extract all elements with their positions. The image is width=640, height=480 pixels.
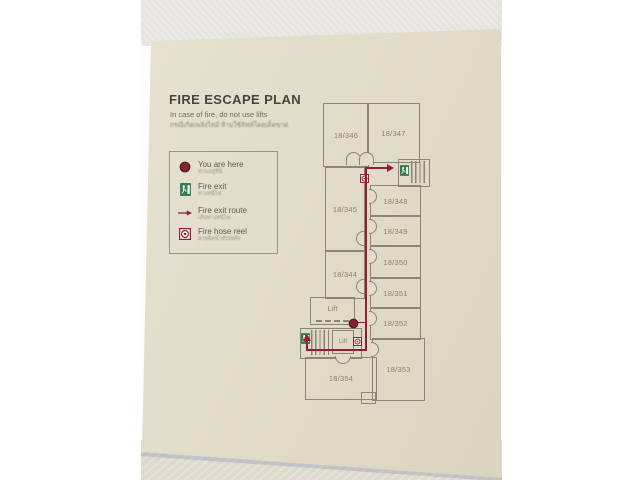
room-label: 18/345 <box>333 205 357 214</box>
route-line-bottom <box>306 349 367 351</box>
subtitle-thai: กรณีเกิดเพลิงไหม้ ห้ามใช้ลิฟท์โดยเด็ดขาด <box>170 120 288 130</box>
legend-label-thai: ท่านอยู่ที่นี่ <box>198 169 244 176</box>
route-arrowhead-right <box>387 164 394 172</box>
legend-item-fire-hose-reel: Fire hose reel สายฉีดน้ำดับเพลิง <box>178 227 247 243</box>
fire-exit-icon <box>178 182 192 196</box>
double-door-right-leaf <box>359 152 374 165</box>
room-label: 18/353 <box>386 365 410 374</box>
route-arrowhead-up <box>303 334 311 341</box>
room-label: 18/347 <box>381 129 405 138</box>
legend-label: Fire hose reel <box>198 227 247 236</box>
legend-label: Fire exit route <box>198 206 247 215</box>
stairs-bottom <box>311 330 331 355</box>
bottom-wall-notch <box>361 392 376 404</box>
floor-plan: 18/346 18/347 18/345 18/344 18/348 18/34… <box>298 95 438 413</box>
you-are-here-dot-icon <box>178 160 192 174</box>
room-18-351: 18/351 <box>370 277 421 309</box>
legend-label-thai: สายฉีดน้ำดับเพลิง <box>198 236 247 243</box>
fire-exit-icon-top <box>400 164 409 182</box>
legend-box: You are here ท่านอยู่ที่นี่ Fire exit ทา… <box>169 151 278 254</box>
room-label: 18/351 <box>383 289 407 298</box>
route-line-bottom-up <box>306 341 308 350</box>
route-line-vertical <box>365 167 367 351</box>
legend-label-thai: ทางหนีไฟ <box>198 191 226 198</box>
room-18-350: 18/350 <box>370 245 421 279</box>
room-label: 18/346 <box>334 131 358 140</box>
legend-label: Fire exit <box>198 182 226 191</box>
room-label: 18/349 <box>383 227 407 236</box>
route-line-top <box>366 167 388 169</box>
room-label: 18/344 <box>333 270 357 279</box>
fire-exit-route-arrow-icon <box>178 206 192 220</box>
room-18-352: 18/352 <box>370 307 421 340</box>
lift-doors-dashed-line <box>316 320 349 322</box>
room-18-353: 18/353 <box>372 338 425 401</box>
lift-label: Lift <box>327 304 337 313</box>
legend-item-you-are-here: You are here ท่านอยู่ที่นี่ <box>178 160 244 176</box>
room-18-347: 18/347 <box>367 103 420 163</box>
fire-hose-reel-icon <box>178 227 192 241</box>
room-18-348: 18/348 <box>370 185 421 217</box>
legend-label-thai: เส้นทางหนีไฟ <box>198 215 247 222</box>
room-18-349: 18/349 <box>370 215 421 247</box>
door-arc-345 <box>356 231 364 246</box>
you-are-here-dot <box>348 316 359 334</box>
door-arc-344 <box>356 279 364 294</box>
legend-item-fire-exit-route: Fire exit route เส้นทางหนีไฟ <box>178 206 247 222</box>
room-label: 18/352 <box>383 319 407 328</box>
page-title: FIRE ESCAPE PLAN <box>169 92 301 107</box>
subtitle-english: In case of fire, do not use lifts <box>170 110 268 119</box>
legend-item-fire-exit: Fire exit ทางหนีไฟ <box>178 182 226 198</box>
room-label: 18/348 <box>383 197 407 206</box>
stairs-top <box>411 161 427 183</box>
legend-label: You are here <box>198 160 244 169</box>
photo-of-fire-escape-plan-sign: FIRE ESCAPE PLAN In case of fire, do not… <box>0 0 640 480</box>
room-label: 18/354 <box>329 374 353 383</box>
room-label: 18/350 <box>383 258 407 267</box>
lift-label: Lift <box>339 339 347 345</box>
